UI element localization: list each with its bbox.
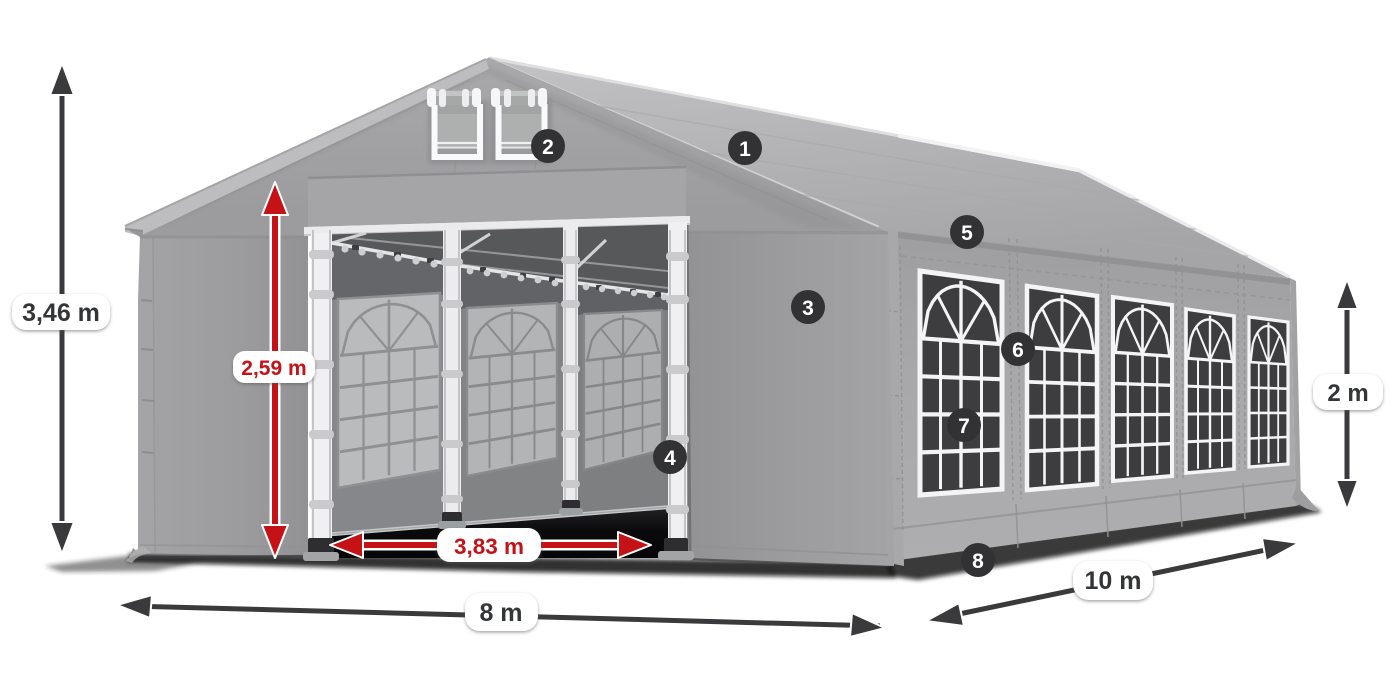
svg-text:2,59 m: 2,59 m	[241, 357, 306, 380]
svg-text:4: 4	[664, 447, 676, 470]
svg-text:10 m: 10 m	[1085, 567, 1142, 595]
svg-text:1: 1	[739, 138, 751, 161]
svg-text:3,46 m: 3,46 m	[22, 299, 100, 327]
svg-text:6: 6	[1012, 339, 1024, 362]
svg-text:2 m: 2 m	[1327, 380, 1368, 407]
svg-text:3,83 m: 3,83 m	[454, 534, 524, 559]
svg-text:3: 3	[802, 297, 814, 320]
svg-text:8 m: 8 m	[479, 599, 522, 627]
svg-text:8: 8	[972, 550, 984, 573]
svg-text:7: 7	[958, 415, 970, 438]
svg-text:2: 2	[542, 136, 554, 159]
svg-text:5: 5	[961, 222, 973, 245]
